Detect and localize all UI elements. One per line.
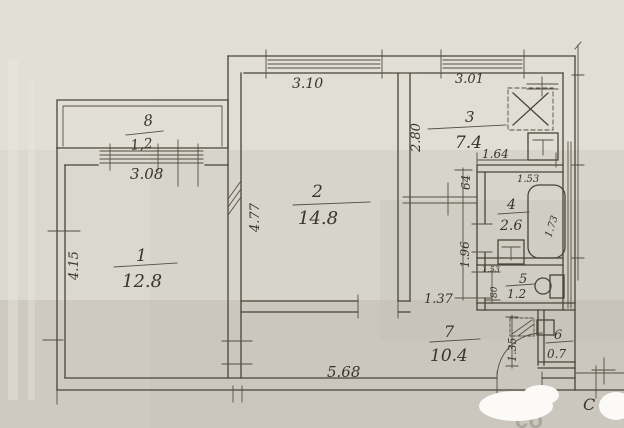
whiteout-patch (523, 385, 559, 405)
dim-kitchen-depth: 2.80 (409, 123, 424, 153)
dim-room2-depth: 4.77 (248, 202, 263, 233)
dim-bath-width: 1.53 (517, 174, 539, 185)
dim-room1-depth: 4.15 (67, 251, 82, 281)
dim-hall-strip: 1.96 (458, 241, 472, 268)
room5-area: 1.2 (507, 287, 526, 301)
room3-number: 3 (465, 108, 475, 126)
room2-area: 14.8 (298, 208, 338, 229)
room6-number: 6 (554, 328, 562, 343)
room8-area: 1,2 (130, 136, 154, 154)
dim-wc-depth: 80 (490, 286, 500, 298)
room7-number: 7 (444, 322, 455, 341)
dim-room2-window: 3.10 (292, 76, 323, 92)
room4-area: 2.6 (499, 218, 522, 234)
room2-number: 2 (311, 182, 323, 202)
room1-area: 12.8 (122, 271, 162, 292)
room4-number: 4 (506, 197, 516, 213)
floor-plan-svg: 8 1,2 3.08 1 12.8 4.15 2 14.8 3.10 4.77 … (0, 0, 624, 428)
dim-corridor: 5.68 (327, 363, 360, 381)
dim-wc-width: 1.53 (482, 265, 500, 274)
dim-balcony: 3.08 (130, 165, 163, 183)
room6-area: 0.7 (547, 347, 566, 361)
room1-number: 1 (136, 246, 147, 266)
dim-bath-block: 1.64 (482, 147, 509, 161)
floor-plan-scan: 8 1,2 3.08 1 12.8 4.15 2 14.8 3.10 4.77 … (0, 0, 624, 428)
room8-number: 8 (143, 111, 154, 130)
compass-mark: C (583, 395, 595, 414)
room3-area: 7.4 (455, 133, 482, 153)
dim-hall-width: 1.37 (424, 292, 454, 307)
dim-entry-nook: 1.35 (506, 338, 519, 363)
dim-kitchen-window: 3.01 (455, 72, 484, 87)
room7-area: 10.4 (430, 346, 468, 366)
dim-kitchen-door: 64 (459, 175, 473, 190)
